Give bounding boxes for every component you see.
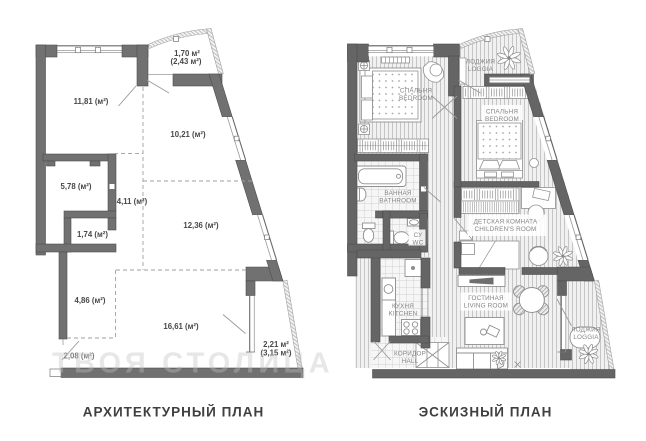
svg-text:ВАННАЯ: ВАННАЯ [384, 190, 411, 197]
svg-text:BATHROOM: BATHROOM [379, 198, 417, 205]
svg-text:LIVING ROOM: LIVING ROOM [464, 303, 508, 310]
svg-text:ГОСТИНАЯ: ГОСТИНАЯ [468, 295, 504, 302]
svg-text:HALL: HALL [402, 358, 419, 365]
svg-text:4,11 (м²): 4,11 (м²) [117, 197, 148, 206]
svg-text:CHILDREN'S ROOM: CHILDREN'S ROOM [475, 226, 537, 233]
svg-text:LOGGIA: LOGGIA [468, 66, 494, 73]
svg-text:СПАЛЬНЯ: СПАЛЬНЯ [486, 109, 518, 116]
svg-text:BEDROOM: BEDROOM [399, 95, 433, 102]
svg-text:СПАЛЬНЯ: СПАЛЬНЯ [400, 88, 432, 95]
svg-text:(2,43 м²): (2,43 м²) [171, 57, 202, 66]
svg-text:10,21 (м²): 10,21 (м²) [170, 130, 206, 139]
svg-text:4,86 (м²): 4,86 (м²) [75, 296, 106, 305]
svg-text:ЭСКИЗНЫЙ ПЛАН: ЭСКИЗНЫЙ ПЛАН [419, 405, 553, 420]
svg-text:WC: WC [413, 240, 424, 247]
svg-text:КОРИДОР: КОРИДОР [394, 351, 426, 358]
svg-text:АРХИТЕКТУРНЫЙ ПЛАН: АРХИТЕКТУРНЫЙ ПЛАН [83, 405, 265, 420]
svg-text:11,81 (м²): 11,81 (м²) [74, 97, 109, 106]
svg-text:12,36 (м²): 12,36 (м²) [183, 221, 219, 230]
svg-text:LOGGIA: LOGGIA [573, 334, 599, 341]
svg-text:KITCHEN: KITCHEN [388, 311, 417, 318]
svg-text:СУ: СУ [414, 232, 424, 239]
svg-text:ТВОЯ СТОЛИЦА: ТВОЯ СТОЛИЦА [52, 348, 334, 380]
svg-text:ЛОДЖИЯ: ЛОДЖИЯ [466, 59, 495, 66]
svg-text:ДЕТСКАЯ КОМНАТА: ДЕТСКАЯ КОМНАТА [474, 219, 538, 226]
svg-text:ЛОДЖИЯ: ЛОДЖИЯ [571, 327, 600, 334]
svg-text:5,78 (м²): 5,78 (м²) [61, 182, 92, 191]
svg-text:КУХНЯ: КУХНЯ [392, 303, 414, 310]
svg-text:1,74 (м²): 1,74 (м²) [77, 230, 108, 239]
svg-text:16,61 (м²): 16,61 (м²) [163, 322, 199, 331]
svg-text:BEDROOM: BEDROOM [485, 116, 519, 123]
